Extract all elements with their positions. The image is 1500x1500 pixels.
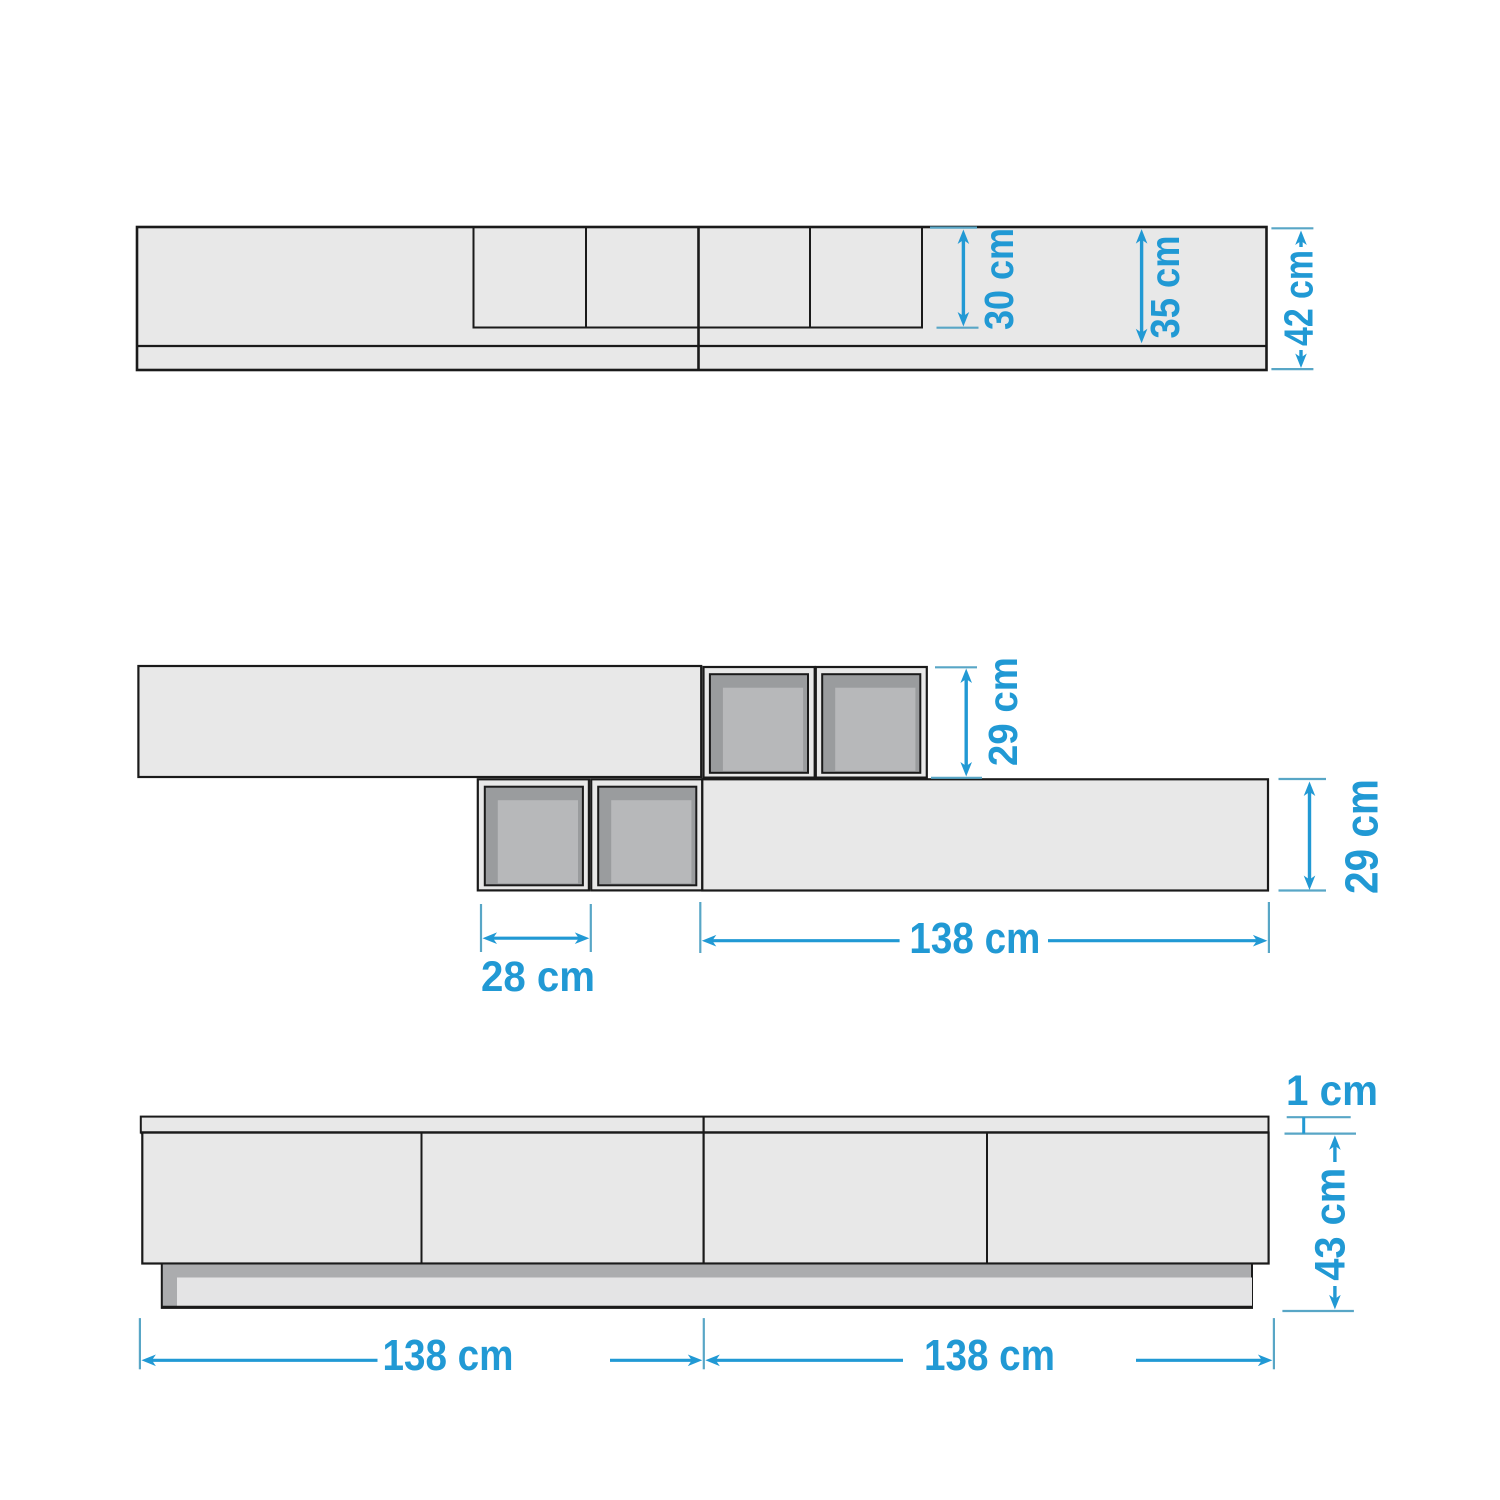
- svg-text:138 cm: 138 cm: [383, 1331, 514, 1380]
- svg-text:138 cm: 138 cm: [909, 914, 1040, 963]
- svg-text:35 cm: 35 cm: [1142, 236, 1188, 339]
- svg-text:30 cm: 30 cm: [976, 228, 1022, 330]
- svg-text:43 cm: 43 cm: [1307, 1168, 1355, 1281]
- svg-text:29 cm: 29 cm: [1336, 779, 1388, 894]
- svg-text:42 cm: 42 cm: [1276, 250, 1322, 346]
- svg-text:29 cm: 29 cm: [980, 657, 1026, 766]
- svg-text:1 cm: 1 cm: [1286, 1067, 1378, 1115]
- svg-text:138 cm: 138 cm: [924, 1331, 1055, 1380]
- svg-text:28 cm: 28 cm: [481, 953, 595, 1001]
